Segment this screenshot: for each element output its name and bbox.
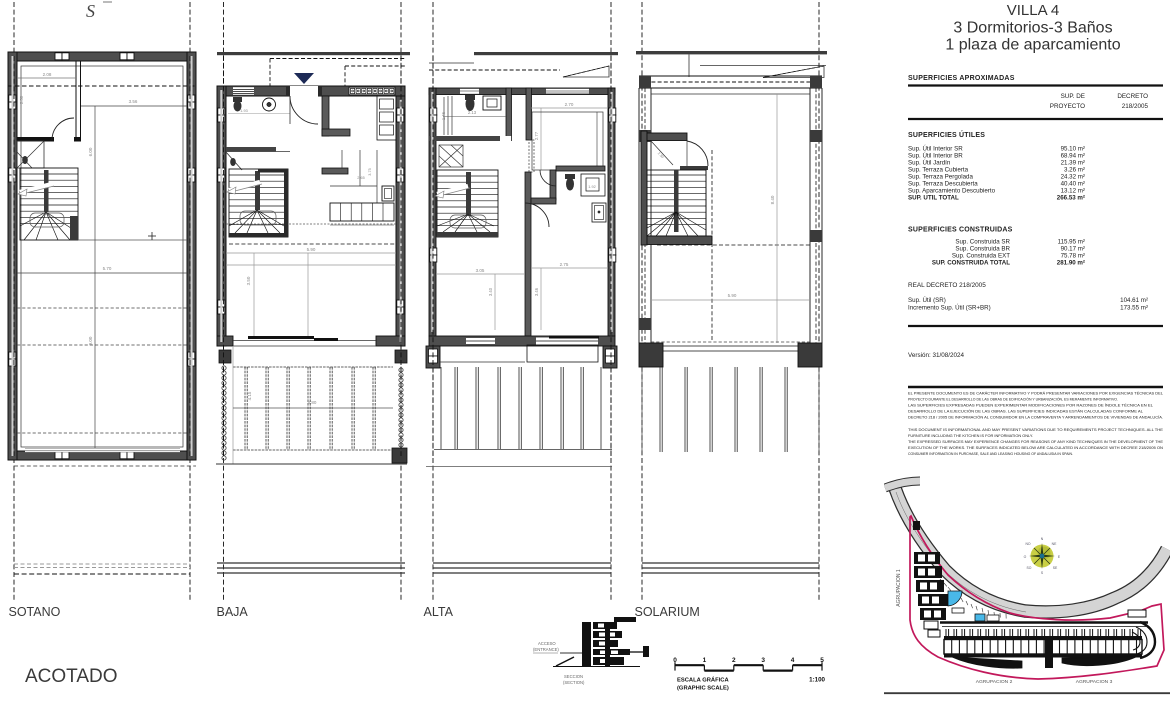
svg-text:EL PRESENTE DOCUMENTO ES DE CA: EL PRESENTE DOCUMENTO ES DE CARÁCTER INF… — [908, 391, 1163, 396]
svg-text:2.13: 2.13 — [468, 110, 477, 115]
svg-text:1.46: 1.46 — [441, 111, 446, 120]
svg-text:(SECTION): (SECTION) — [563, 680, 585, 685]
svg-text:Sup. Útil Interior SR: Sup. Útil Interior SR — [908, 146, 963, 153]
svg-text:ALTA: ALTA — [424, 605, 454, 619]
svg-text:21.39 m²: 21.39 m² — [1061, 160, 1085, 167]
svg-text:2: 2 — [732, 657, 736, 664]
svg-text:3.50: 3.50 — [246, 276, 251, 285]
svg-text:SUPERFICIES ÚTILES: SUPERFICIES ÚTILES — [908, 130, 985, 139]
svg-text:NE: NE — [1052, 542, 1057, 546]
svg-text:E: E — [1058, 555, 1061, 559]
svg-text:3.56: 3.56 — [129, 99, 138, 104]
svg-text:75.78 m²: 75.78 m² — [1061, 253, 1085, 260]
svg-text:68.94 m²: 68.94 m² — [1061, 153, 1085, 160]
svg-text:THIS DOCUMENT IS INFORMATIONAL: THIS DOCUMENT IS INFORMATIONAL AND MAY P… — [908, 428, 1164, 432]
svg-text:9.00: 9.00 — [88, 336, 93, 345]
svg-text:1: 1 — [703, 657, 707, 664]
svg-text:3.05: 3.05 — [476, 268, 485, 273]
svg-text:SUP. UTIL TOTAL: SUP. UTIL TOTAL — [908, 195, 959, 202]
svg-text:Sup. Terraza Descubierta: Sup. Terraza Descubierta — [908, 181, 978, 188]
svg-text:(GRAPHIC SCALE): (GRAPHIC SCALE) — [677, 686, 729, 692]
svg-text:1 plaza de aparcamiento: 1 plaza de aparcamiento — [945, 37, 1120, 54]
svg-text:LAS SUPERFICIES EXPRESADAS PUE: LAS SUPERFICIES EXPRESADAS PUEDEN EXPERI… — [908, 403, 1153, 408]
svg-text:S: S — [86, 1, 95, 21]
svg-text:Sup. Terraza Cubierta: Sup. Terraza Cubierta — [908, 167, 969, 174]
svg-text:3.26 m²: 3.26 m² — [1064, 167, 1085, 174]
svg-text:EXECUTION OF THE WORKS. THE SU: EXECUTION OF THE WORKS. THE SURFACES IND… — [908, 446, 1164, 450]
svg-text:Incremento Sup. Útil (SR+BR): Incremento Sup. Útil (SR+BR) — [908, 305, 991, 312]
svg-text:SO: SO — [1027, 566, 1032, 570]
svg-text:Sup. Útil Interior BR: Sup. Útil Interior BR — [908, 153, 963, 160]
svg-text:3.46: 3.46 — [534, 287, 539, 296]
svg-text:(ENTRANCE): (ENTRANCE) — [533, 647, 559, 652]
svg-text:95.10 m²: 95.10 m² — [1061, 146, 1085, 153]
svg-text:ACOTADO: ACOTADO — [25, 666, 118, 687]
svg-text:115.95 m²: 115.95 m² — [1058, 239, 1085, 246]
svg-text:FURNITURE INCLUDING THE KITCHE: FURNITURE INCLUDING THE KITCHEN IS FOR I… — [908, 434, 1033, 438]
svg-text:5.70: 5.70 — [103, 266, 112, 271]
svg-text:AGRUPACION 1: AGRUPACION 1 — [896, 569, 902, 607]
svg-text:S: S — [1041, 571, 1044, 575]
svg-text:O: O — [1024, 555, 1027, 559]
svg-text:Sup. Terraza Pergolada: Sup. Terraza Pergolada — [908, 174, 973, 181]
svg-text:ACCESO: ACCESO — [538, 641, 556, 646]
svg-text:SUP. DE: SUP. DE — [1061, 93, 1085, 100]
svg-text:3: 3 — [761, 657, 765, 664]
svg-text:218/2005: 218/2005 — [1122, 103, 1149, 110]
svg-text:DECRETO 218 / 2005 DE INFORMAC: DECRETO 218 / 2005 DE INFORMACIÓN AL CON… — [908, 415, 1163, 420]
svg-text:4: 4 — [791, 657, 795, 664]
svg-text:1:100: 1:100 — [809, 677, 825, 684]
svg-text:3 Dormitorios-3 Baños: 3 Dormitorios-3 Baños — [953, 20, 1112, 37]
svg-text:THE EXPRESSED SURFACES MAY EXP: THE EXPRESSED SURFACES MAY EXPERIENCE CH… — [908, 440, 1164, 444]
svg-text:5.90: 5.90 — [307, 247, 316, 252]
svg-text:3.40: 3.40 — [488, 287, 493, 296]
svg-text:173.55 m²: 173.55 m² — [1120, 305, 1148, 312]
svg-text:SUPERFICIES APROXIMADAS: SUPERFICIES APROXIMADAS — [908, 75, 1015, 82]
svg-text:NO: NO — [1025, 542, 1030, 546]
svg-text:SUPERFICIES CONSTRUIDAS: SUPERFICIES CONSTRUIDAS — [908, 227, 1013, 234]
svg-text:PROYECTO: PROYECTO — [1050, 103, 1085, 110]
svg-text:5.90: 5.90 — [728, 293, 737, 298]
svg-text:90.17 m²: 90.17 m² — [1061, 246, 1085, 253]
svg-text:40.40 m²: 40.40 m² — [1061, 181, 1085, 188]
svg-text:REAL DECRETO 218/2005: REAL DECRETO 218/2005 — [908, 282, 986, 289]
svg-text:PROYECTO DURANTE EL DESARROLLO: PROYECTO DURANTE EL DESARROLLO DE LAS OB… — [908, 397, 1118, 402]
svg-text:2.75: 2.75 — [560, 262, 569, 267]
svg-text:6.00: 6.00 — [88, 147, 93, 156]
svg-text:1.93: 1.93 — [240, 109, 247, 113]
svg-text:SECCION: SECCION — [564, 674, 583, 679]
svg-text:SOTANO: SOTANO — [9, 605, 61, 619]
svg-text:Sup. Aparcamiento Descubierto: Sup. Aparcamiento Descubierto — [908, 188, 996, 195]
svg-text:AGRUPACION 3: AGRUPACION 3 — [1076, 679, 1113, 685]
svg-text:8.40: 8.40 — [770, 195, 775, 204]
svg-text:Sup. Construida EXT: Sup. Construida EXT — [952, 253, 1010, 260]
svg-text:104.61 m²: 104.61 m² — [1120, 297, 1148, 304]
svg-text:Versión: 31/08/2024: Versión: 31/08/2024 — [908, 352, 965, 359]
svg-text:ESCALA GRÁFICA: ESCALA GRÁFICA — [677, 677, 729, 684]
svg-text:VILLA 4: VILLA 4 — [1007, 2, 1060, 19]
svg-text:281.90 m²: 281.90 m² — [1057, 260, 1085, 267]
svg-text:5.80: 5.80 — [308, 400, 317, 405]
svg-text:2.08: 2.08 — [43, 72, 52, 77]
svg-text:BAJA: BAJA — [217, 605, 249, 619]
svg-text:4.15: 4.15 — [247, 391, 252, 400]
svg-text:24.32 m²: 24.32 m² — [1061, 174, 1085, 181]
svg-text:Sup. Útil Jardín: Sup. Útil Jardín — [908, 160, 951, 167]
svg-text:N: N — [1041, 537, 1044, 541]
svg-text:2.50: 2.50 — [19, 95, 24, 104]
svg-text:2.77: 2.77 — [534, 131, 539, 140]
svg-text:SE: SE — [1053, 566, 1058, 570]
svg-text:2.70: 2.70 — [565, 102, 574, 107]
svg-text:AGRUPACION 2: AGRUPACION 2 — [976, 679, 1013, 685]
svg-text:SOLARIUM: SOLARIUM — [635, 605, 700, 619]
svg-text:Sup. Construida SR: Sup. Construida SR — [955, 239, 1010, 246]
svg-text:SUP. CONSTRUIDA TOTAL: SUP. CONSTRUIDA TOTAL — [932, 260, 1010, 267]
svg-text:2.30: 2.30 — [657, 151, 665, 159]
svg-text:3.75: 3.75 — [368, 168, 372, 175]
svg-text:266.53 m²: 266.53 m² — [1057, 195, 1085, 202]
svg-text:Sup. Construida BR: Sup. Construida BR — [955, 246, 1010, 253]
svg-text:CONSUMER INFORMATION IN PURCHA: CONSUMER INFORMATION IN PURCHASE, SALE A… — [908, 452, 1073, 456]
svg-text:Sup. Útil (SR): Sup. Útil (SR) — [908, 297, 946, 304]
svg-text:13.12 m²: 13.12 m² — [1061, 188, 1085, 195]
svg-text:DESARROLLO DE LA EJECUCIÓN DE: DESARROLLO DE LA EJECUCIÓN DE LAS OBRAS.… — [908, 409, 1143, 414]
svg-text:DECRETO: DECRETO — [1117, 93, 1148, 100]
svg-text:1.92: 1.92 — [588, 185, 595, 189]
svg-text:2.65: 2.65 — [357, 176, 364, 180]
